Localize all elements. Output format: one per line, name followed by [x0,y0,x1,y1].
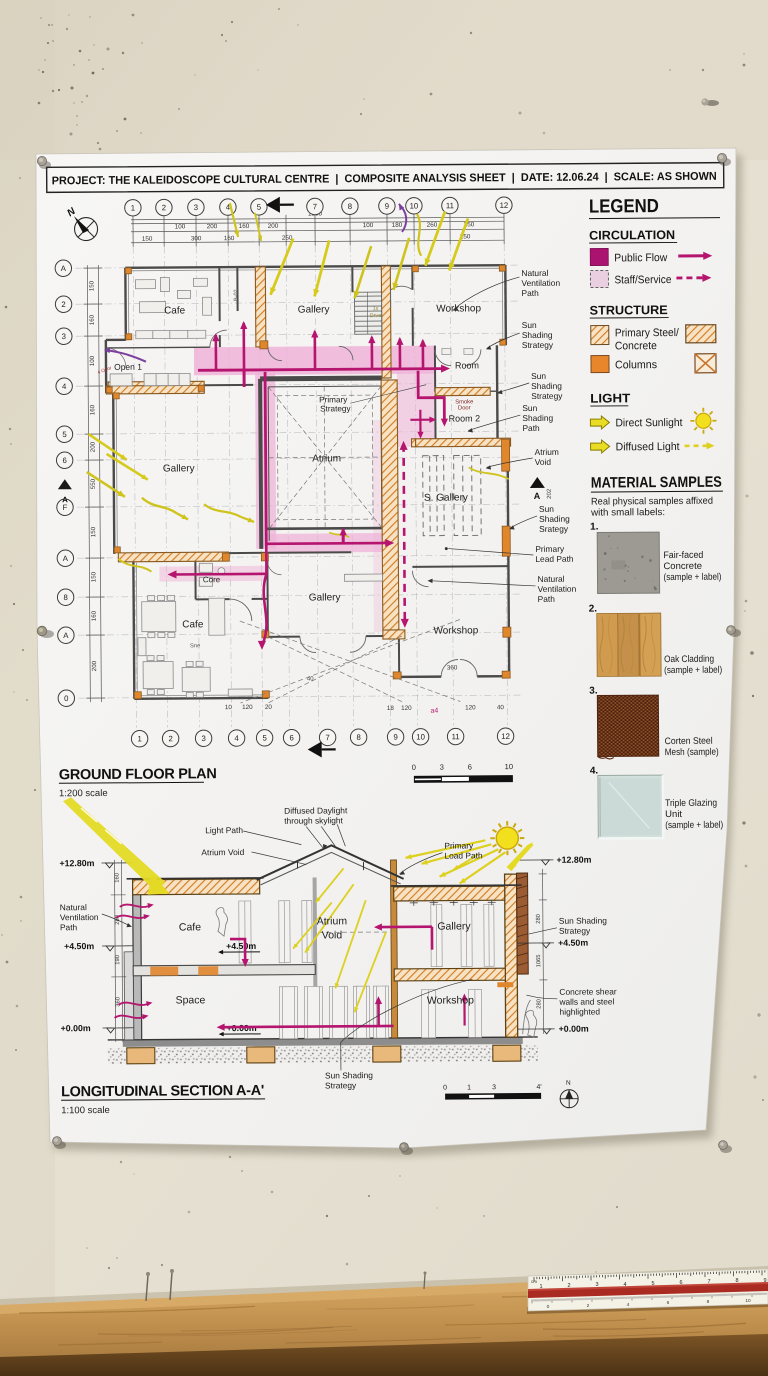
svg-text:Strategy: Strategy [522,340,554,350]
svg-text:100: 100 [175,223,186,230]
svg-text:N: N [566,1080,571,1087]
svg-text:8: 8 [63,593,67,602]
svg-text:Room: Room [455,360,479,370]
svg-text:6: 6 [289,733,293,742]
svg-text:280: 280 [536,999,542,1009]
svg-text:Cafe: Cafe [179,921,201,933]
svg-text:Sun: Sun [522,403,537,413]
svg-text:260: 260 [427,222,438,229]
svg-text:0: 0 [64,694,69,703]
svg-text:120: 120 [401,705,412,712]
svg-text:160: 160 [115,873,121,883]
svg-text:280: 280 [536,914,542,924]
svg-text:Sun: Sun [522,320,537,330]
svg-text:Room 2: Room 2 [449,413,481,423]
svg-text:Gallery: Gallery [437,920,471,932]
svg-text:150: 150 [90,571,97,582]
svg-text:Public Flow: Public Flow [614,252,667,264]
svg-text:160: 160 [89,314,96,325]
svg-text:+0.00m: +0.00m [61,1023,91,1033]
svg-text:with small labels:: with small labels: [590,507,665,519]
svg-text:Shading: Shading [531,381,562,391]
svg-text:Gallery: Gallery [309,592,341,603]
svg-text:Load Path: Load Path [444,850,483,860]
svg-text:Void: Void [535,457,552,467]
svg-text:through skylight: through skylight [284,815,343,825]
svg-text:6: 6 [468,762,472,771]
svg-text:3: 3 [62,332,66,341]
svg-text:8: 8 [356,733,360,742]
svg-text:Natural: Natural [60,902,87,912]
svg-text:1: 1 [539,1284,542,1290]
svg-text:3: 3 [440,763,444,772]
svg-text:Sun Shading: Sun Shading [325,1070,373,1080]
svg-text:Srategy: Srategy [539,524,569,534]
svg-text:2: 2 [587,1303,590,1309]
svg-text:Ventilation: Ventilation [538,584,577,594]
svg-text:STRUCTURE: STRUCTURE [590,303,668,318]
svg-text:300: 300 [191,235,202,242]
svg-text:+12.80m: +12.80m [59,858,94,868]
svg-text:Cafe: Cafe [164,305,186,316]
svg-text:0: 0 [547,1304,550,1310]
svg-text:7: 7 [313,202,317,211]
svg-text:Sun: Sun [531,371,546,381]
svg-text:3: 3 [201,734,205,743]
svg-text:Direct Sunlight: Direct Sunlight [615,417,682,429]
svg-text:Natural: Natural [537,574,564,584]
svg-text:2: 2 [61,300,65,309]
svg-text:1.: 1. [590,522,599,533]
svg-text:Ventilation: Ventilation [521,278,560,288]
svg-text:40: 40 [497,704,505,711]
svg-text:Triple Glazing: Triple Glazing [665,798,717,809]
svg-text:120: 120 [465,704,476,711]
svg-text:Drve: Drve [370,313,382,319]
svg-text:2: 2 [567,1283,570,1289]
svg-text:Sun Shading: Sun Shading [559,915,607,925]
svg-text:Shading: Shading [522,413,553,423]
svg-text:4: 4 [627,1302,630,1308]
svg-text:1065: 1065 [536,954,542,967]
svg-text:0: 0 [443,1085,447,1092]
svg-text:100: 100 [363,222,374,229]
svg-text:9: 9 [763,1278,766,1284]
svg-text:202: 202 [547,488,553,499]
svg-text:160: 160 [224,235,235,242]
svg-text:+4.50m: +4.50m [226,941,256,951]
svg-text:8: 8 [707,1299,710,1305]
svg-text:Light Path: Light Path [205,825,243,835]
svg-text:Workshop: Workshop [427,994,474,1006]
svg-text:GROUND FLOOR PLAN: GROUND FLOOR PLAN [59,766,217,783]
svg-text:180: 180 [392,222,403,229]
svg-text:Gallery: Gallery [298,304,330,315]
svg-text:Atrium: Atrium [312,453,341,464]
svg-text:Mesh (sample): Mesh (sample) [665,747,719,758]
svg-text:Real physical samples affixed: Real physical samples affixed [591,496,713,508]
svg-text:Atrium Void: Atrium Void [201,847,244,857]
svg-text:Void: Void [322,929,343,941]
svg-text:160: 160 [91,610,98,621]
svg-text:+4.50m: +4.50m [558,938,588,948]
svg-text:Gallery: Gallery [163,463,195,474]
svg-text:Atrium: Atrium [535,447,559,457]
svg-text:2: 2 [162,203,166,212]
svg-text:cm: cm [531,1279,537,1284]
svg-text:4: 4 [62,382,67,391]
svg-text:Open 1: Open 1 [114,362,142,372]
svg-text:190: 190 [115,955,121,965]
svg-text:Concrete: Concrete [615,340,657,352]
svg-text:LONGITUDINAL SECTION A-A': LONGITUDINAL SECTION A-A' [61,1083,264,1100]
svg-text:3: 3 [194,203,198,212]
svg-text:11: 11 [452,732,460,741]
svg-text:1: 1 [137,734,141,743]
svg-text:Path: Path [522,423,540,433]
svg-text:200: 200 [90,441,97,452]
svg-text:Workshop: Workshop [433,625,478,636]
svg-text:5: 5 [651,1281,654,1287]
svg-text:(sample + label): (sample + label) [665,820,723,831]
svg-text:2.: 2. [589,604,598,615]
svg-text:4: 4 [234,734,239,743]
svg-text:Atrium: Atrium [317,915,348,927]
svg-text:1:200 scale: 1:200 scale [59,788,108,799]
svg-text:LIGHT: LIGHT [590,391,630,405]
svg-text:12: 12 [500,201,509,210]
svg-text:10: 10 [416,732,425,741]
svg-text:8: 8 [735,1278,738,1284]
svg-text:+12.80m: +12.80m [556,855,591,865]
svg-text:Sun: Sun [539,504,554,514]
svg-text:6: 6 [667,1300,670,1306]
svg-text:A: A [62,495,68,504]
svg-text:120: 120 [242,704,253,711]
svg-text:CIRCULATION: CIRCULATION [589,228,675,243]
svg-text:150: 150 [88,280,95,291]
svg-text:10: 10 [505,762,513,771]
svg-text:4': 4' [536,1084,541,1091]
svg-text:Strategy: Strategy [531,391,563,401]
svg-text:40: 40 [307,677,314,683]
svg-text:1: 1 [467,1084,471,1091]
svg-text:10: 10 [410,201,419,210]
svg-text:20: 20 [265,704,273,711]
svg-text:LEGEND: LEGEND [589,196,659,217]
svg-text:MATERIAL SAMPLES: MATERIAL SAMPLES [591,474,722,492]
svg-text:12: 12 [501,732,510,741]
svg-text:1: 1 [131,203,135,212]
svg-text:Shading: Shading [522,330,553,340]
svg-text:Core: Core [203,575,221,584]
svg-text:0: 0 [412,763,416,772]
svg-text:Path: Path [521,288,539,298]
svg-text:A: A [63,554,69,563]
svg-text:Sne: Sne [190,643,200,649]
svg-text:Oak Cladding: Oak Cladding [664,654,714,665]
svg-text:9: 9 [393,733,397,742]
svg-text:Ventilation: Ventilation [60,912,99,922]
svg-text:10: 10 [225,704,233,711]
svg-text:6: 6 [679,1280,682,1286]
svg-text:550: 550 [90,478,97,489]
svg-text:Primary: Primary [319,395,348,404]
svg-text:360: 360 [447,665,458,672]
svg-text:Door: Door [458,405,471,411]
svg-text:+4.50m: +4.50m [64,941,94,951]
svg-text:Strategy: Strategy [320,404,351,413]
svg-text:Concrete: Concrete [663,561,702,572]
svg-text:9: 9 [385,202,389,211]
svg-text:a4: a4 [431,708,439,715]
svg-text:5: 5 [257,203,262,212]
svg-text:Strategy: Strategy [559,926,591,936]
svg-text:3: 3 [492,1084,496,1091]
svg-text:Primary: Primary [535,544,565,554]
svg-text:Strategy: Strategy [325,1080,357,1090]
svg-text:1:100 scale: 1:100 scale [61,1105,110,1116]
svg-text:A: A [63,631,69,640]
svg-text:Diffused Daylight: Diffused Daylight [284,805,348,815]
svg-text:200: 200 [268,223,279,230]
svg-text:360: 360 [115,997,121,1007]
svg-text:100: 100 [89,355,96,366]
svg-text:walls and steel: walls and steel [558,996,614,1006]
svg-text:2: 2 [168,734,172,743]
svg-text:(sample + label): (sample + label) [663,572,721,583]
svg-text:Path: Path [60,922,78,932]
svg-text:Space: Space [176,994,206,1006]
svg-text:160: 160 [239,223,250,230]
svg-text:Unit: Unit [665,809,682,820]
svg-text:6: 6 [62,456,66,465]
svg-text:Fair-faced: Fair-faced [663,550,703,561]
svg-text:B-02: B-02 [233,289,239,301]
svg-text:11: 11 [446,201,454,210]
svg-text:(sample + label): (sample + label) [664,665,722,676]
svg-text:highlighted: highlighted [559,1007,600,1017]
svg-text:Cafe: Cafe [182,619,204,630]
svg-text:+0.00m: +0.00m [559,1024,589,1034]
svg-text:F: F [63,503,68,512]
svg-text:200: 200 [207,223,218,230]
svg-text:8: 8 [348,202,352,211]
svg-text:4: 4 [623,1282,626,1288]
svg-text:160: 160 [89,404,96,415]
svg-text:150: 150 [90,526,97,537]
svg-text:5: 5 [62,430,67,439]
svg-text:Staff/Service: Staff/Service [614,274,671,286]
svg-text:Columns: Columns [615,359,658,371]
svg-text:A: A [61,264,67,273]
svg-text:Primary: Primary [444,840,474,850]
svg-text:200: 200 [91,660,98,671]
svg-text:150: 150 [142,236,153,243]
svg-text:Primary Steel/: Primary Steel/ [615,327,680,339]
svg-text:10: 10 [745,1298,751,1304]
svg-text:7: 7 [325,733,329,742]
svg-text:Lead Path: Lead Path [535,554,574,564]
svg-text:4.: 4. [590,766,599,777]
svg-text:S. Gallery: S. Gallery [424,492,468,503]
svg-text:18: 18 [387,705,395,712]
svg-text:3: 3 [595,1282,598,1288]
svg-text:5: 5 [262,734,267,743]
svg-text:Corten Steel: Corten Steel [665,736,713,747]
svg-text:A: A [534,491,541,501]
svg-text:Diffused Light: Diffused Light [616,441,680,453]
svg-text:7: 7 [707,1279,710,1285]
svg-text:3.: 3. [589,686,598,697]
svg-text:Path: Path [538,594,556,604]
svg-text:1s: 1s [373,306,379,312]
svg-text:Concrete shear: Concrete shear [559,986,617,996]
svg-text:Natural: Natural [521,268,548,278]
svg-text:Shading: Shading [539,514,570,524]
